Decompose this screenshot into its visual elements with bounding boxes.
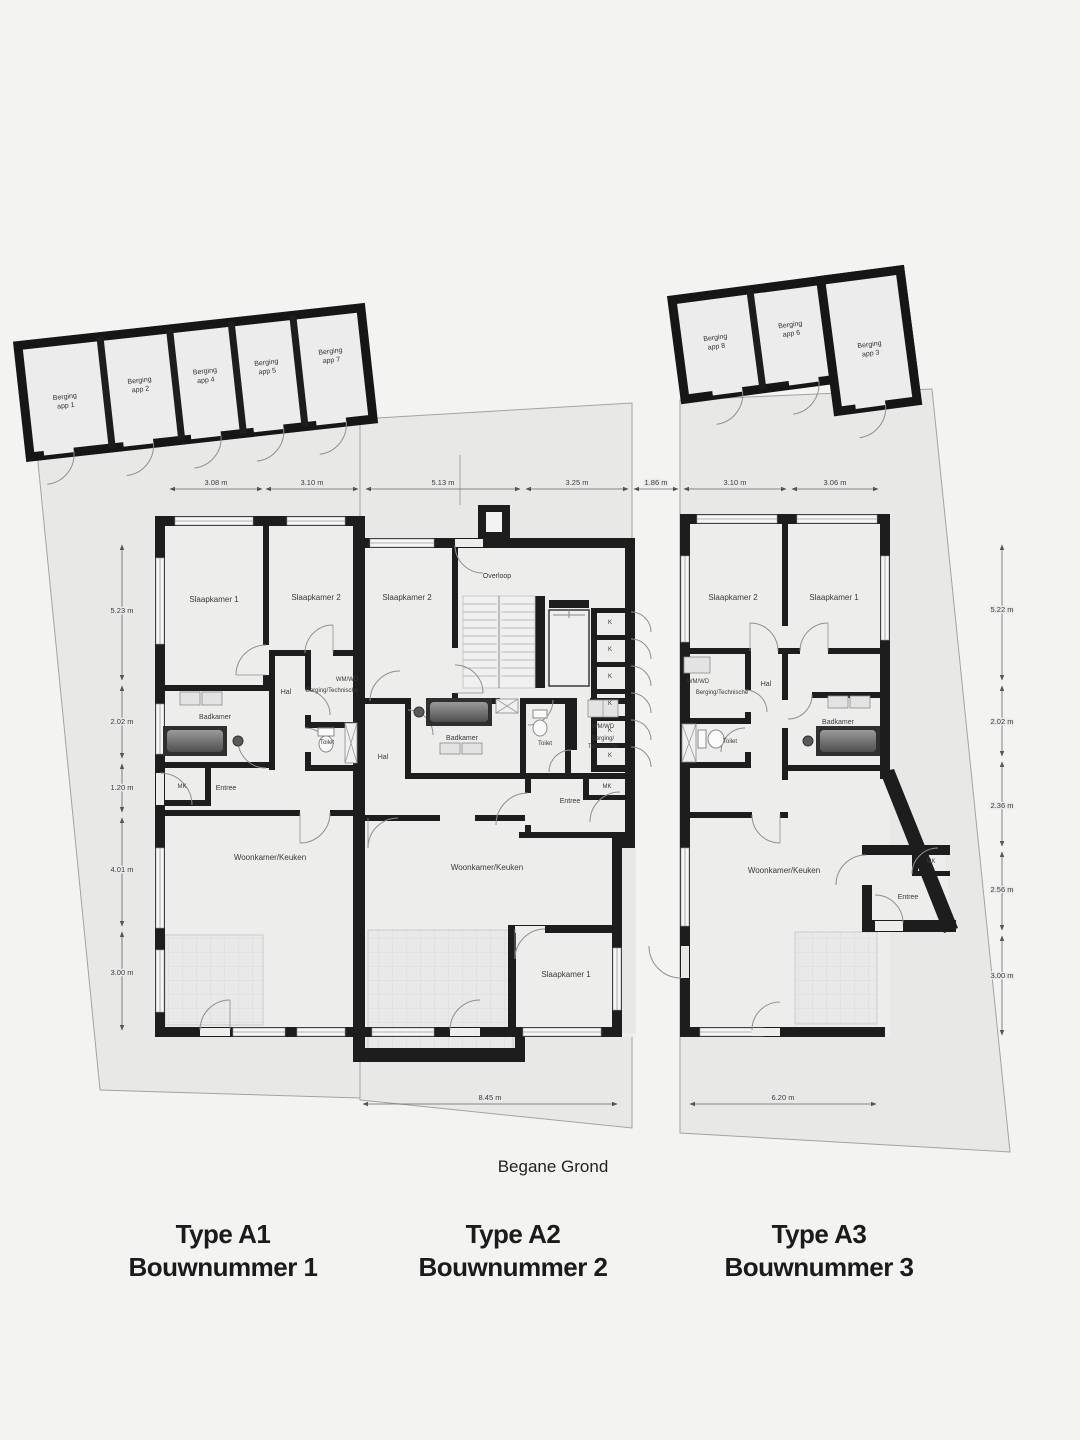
room-label-a1-wmwd: WM/WD xyxy=(336,677,359,683)
caption-type-a3: Type A3 xyxy=(772,1219,867,1249)
caption-bouwnummer-3: Bouwnummer 3 xyxy=(724,1252,913,1282)
dim-label: 3.10 m xyxy=(724,478,747,487)
kast-label: K xyxy=(608,647,612,653)
dim-label: 3.25 m xyxy=(566,478,589,487)
toilet-tank xyxy=(698,730,706,748)
room-label-a3-entree: Entree xyxy=(898,894,919,901)
dim-label: 1.20 m xyxy=(111,783,134,792)
toilet-tank xyxy=(318,728,334,736)
dim-label: 2.36 m xyxy=(991,801,1014,810)
caption-bouwnummer-2: Bouwnummer 2 xyxy=(418,1252,607,1282)
kast-label: K xyxy=(608,753,612,759)
room-label-a2-woonkamer: Woonkamer/Keuken xyxy=(451,863,523,872)
room-label-a2-mk: MK xyxy=(603,784,612,790)
dim-label: 3.06 m xyxy=(824,478,847,487)
dim-label: 1.86 m xyxy=(645,478,668,487)
floorplan-page: Bergingapp 1 Bergingapp 2 Bergingapp 4 B… xyxy=(0,0,1080,1440)
dim-label: 3.10 m xyxy=(301,478,324,487)
sink xyxy=(828,696,848,708)
dim-label: 4.01 m xyxy=(111,865,134,874)
room-label-a2-slaapkamer2: Slaapkamer 2 xyxy=(382,593,432,602)
caption-bouwnummer-1: Bouwnummer 1 xyxy=(128,1252,317,1282)
room-label-a2-entree: Entree xyxy=(560,798,581,805)
room-label-a1-woonkamer: Woonkamer/Keuken xyxy=(234,853,306,862)
room-label-a1-slaapkamer1: Slaapkamer 1 xyxy=(189,595,239,604)
storage-right-cell3 xyxy=(821,270,918,411)
room-label-a1-entree: Entree xyxy=(216,785,237,792)
building: Slaapkamer 1 Slaapkamer 2 Hal WM/WD Berg… xyxy=(155,505,958,1062)
terrace-a3 xyxy=(795,932,877,1024)
room-label-a2-toilet: Toilet xyxy=(538,741,552,747)
room-label-a3-slaapkamer1: Slaapkamer 1 xyxy=(809,593,859,602)
sink xyxy=(462,743,482,754)
floor-plan-svg: Bergingapp 1 Bergingapp 2 Bergingapp 4 B… xyxy=(0,0,1080,1440)
room-label-a1-toilet: Toilet xyxy=(320,740,334,746)
sink xyxy=(180,692,200,705)
terrace-a1 xyxy=(165,935,263,1025)
room-label-a2-badkamer: Badkamer xyxy=(446,735,479,742)
kast-label: K xyxy=(608,620,612,626)
room-label-a3-berging: Berging/Technische xyxy=(696,690,749,696)
dim-label: 3.00 m xyxy=(991,971,1014,980)
room-label-a1-berging: Berging/Technische xyxy=(306,688,359,694)
dim-label: 5.22 m xyxy=(991,605,1014,614)
tap xyxy=(414,707,424,717)
room-label-a1-slaapkamer2: Slaapkamer 2 xyxy=(291,593,341,602)
toilet-bowl xyxy=(533,720,547,736)
room-label-a3-slaapkamer2: Slaapkamer 2 xyxy=(708,593,758,602)
room-label-a2-hal: Hal xyxy=(378,754,389,761)
room-label-a3-wmwd: WM/WD xyxy=(687,679,710,685)
stairs xyxy=(463,596,535,688)
sink xyxy=(850,696,870,708)
toilet-bowl xyxy=(708,730,724,748)
caption-type-a1: Type A1 xyxy=(176,1219,271,1249)
room-label-a1-hal: Hal xyxy=(281,689,292,696)
room-label-a2-slaapkamer1: Slaapkamer 1 xyxy=(541,970,591,979)
dim-label: 2.56 m xyxy=(991,885,1014,894)
room-label-a3-mk: MK xyxy=(927,859,936,865)
dim-label: 5.23 m xyxy=(111,606,134,615)
tap xyxy=(803,736,813,746)
sink xyxy=(202,692,222,705)
dim-label: 2.02 m xyxy=(991,717,1014,726)
room-label-a1-badkamer: Badkamer xyxy=(199,714,232,721)
dim-label: 2.02 m xyxy=(111,717,134,726)
room-label-a2-overloop: Overloop xyxy=(483,573,512,580)
dim-label: 3.08 m xyxy=(205,478,228,487)
room-label-a3-badkamer: Badkamer xyxy=(822,719,855,726)
elevator xyxy=(549,610,589,686)
room-label-a1-mk: MK xyxy=(178,784,187,790)
washer-dryer xyxy=(684,657,710,673)
floor-title: Begane Grond xyxy=(498,1157,609,1176)
sink xyxy=(440,743,460,754)
caption-type-a2: Type A2 xyxy=(466,1219,561,1249)
toilet-tank xyxy=(533,710,547,718)
tap xyxy=(233,736,243,746)
dim-label: 6.20 m xyxy=(772,1093,795,1102)
room-label-a3-woonkamer: Woonkamer/Keuken xyxy=(748,866,820,875)
dim-label: 3.00 m xyxy=(111,968,134,977)
dim-label: 8.45 m xyxy=(479,1093,502,1102)
kast-label: K xyxy=(608,701,612,707)
kast-label: K xyxy=(608,728,612,734)
kast-label: K xyxy=(608,674,612,680)
room-label-a3-toilet: Toilet xyxy=(723,739,737,745)
room-label-a3-hal: Hal xyxy=(761,681,772,688)
dim-label: 5.13 m xyxy=(432,478,455,487)
